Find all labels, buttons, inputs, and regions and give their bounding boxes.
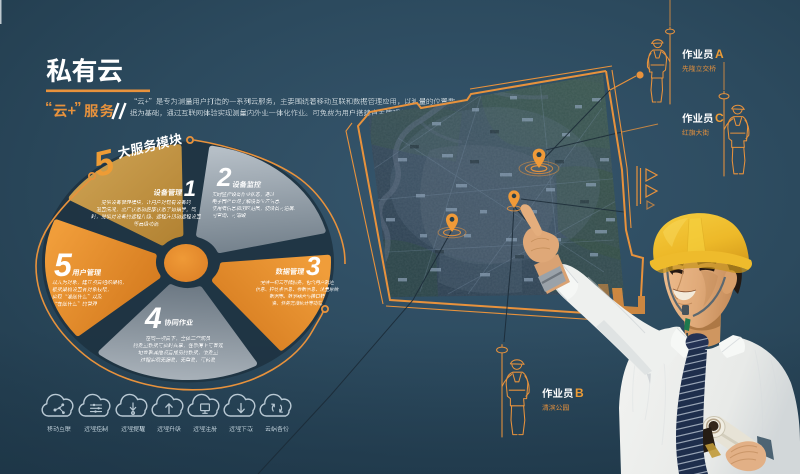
svg-text:C: C — [715, 111, 724, 125]
svg-text:A: A — [715, 47, 724, 61]
svg-text:B: B — [575, 386, 584, 400]
svg-text:5: 5 — [54, 247, 73, 283]
svg-text:”: ” — [74, 99, 82, 116]
svg-text:1: 1 — [184, 176, 196, 201]
svg-text:2: 2 — [216, 162, 232, 192]
svg-text:4: 4 — [144, 302, 162, 335]
svg-text:“: “ — [45, 99, 53, 116]
svg-text:3: 3 — [306, 251, 321, 281]
